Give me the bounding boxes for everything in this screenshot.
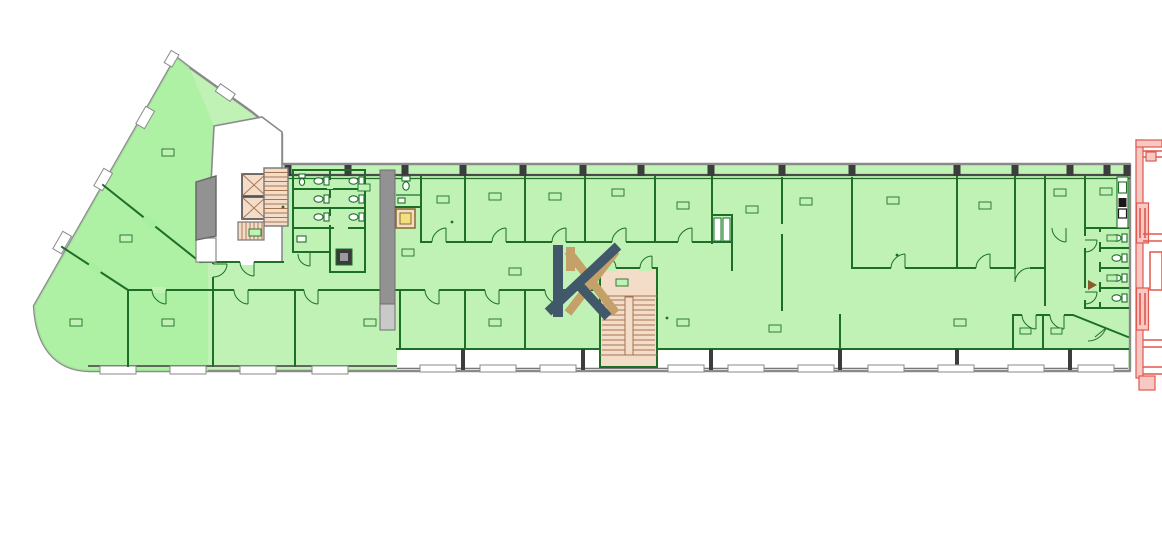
toilet-icon [349,195,364,203]
wing-floor [34,57,214,371]
red-room-label [1137,288,1149,330]
sink-icon [1119,182,1127,193]
toilet-icon [314,195,329,203]
stove-icon [1119,209,1127,218]
floor-plan-drawing [0,0,1162,558]
neighbor-building-red [1136,140,1162,390]
sink-icon [398,198,405,203]
kitchenette [1117,177,1128,228]
red-room-label [1137,203,1149,243]
stove-icon [1119,198,1127,207]
toilet-icon [1112,294,1127,302]
toilet-icon [314,213,329,221]
shaft-gray [196,176,216,240]
toilet-icon [314,177,329,185]
sink-icon [297,236,306,242]
toilet-icon [349,213,364,221]
central-staircase [600,268,657,367]
urinal-icon [299,174,305,185]
toilet-icon [402,176,410,190]
floor-plan-canvas [0,0,1162,558]
toilet-icon [1112,254,1127,262]
